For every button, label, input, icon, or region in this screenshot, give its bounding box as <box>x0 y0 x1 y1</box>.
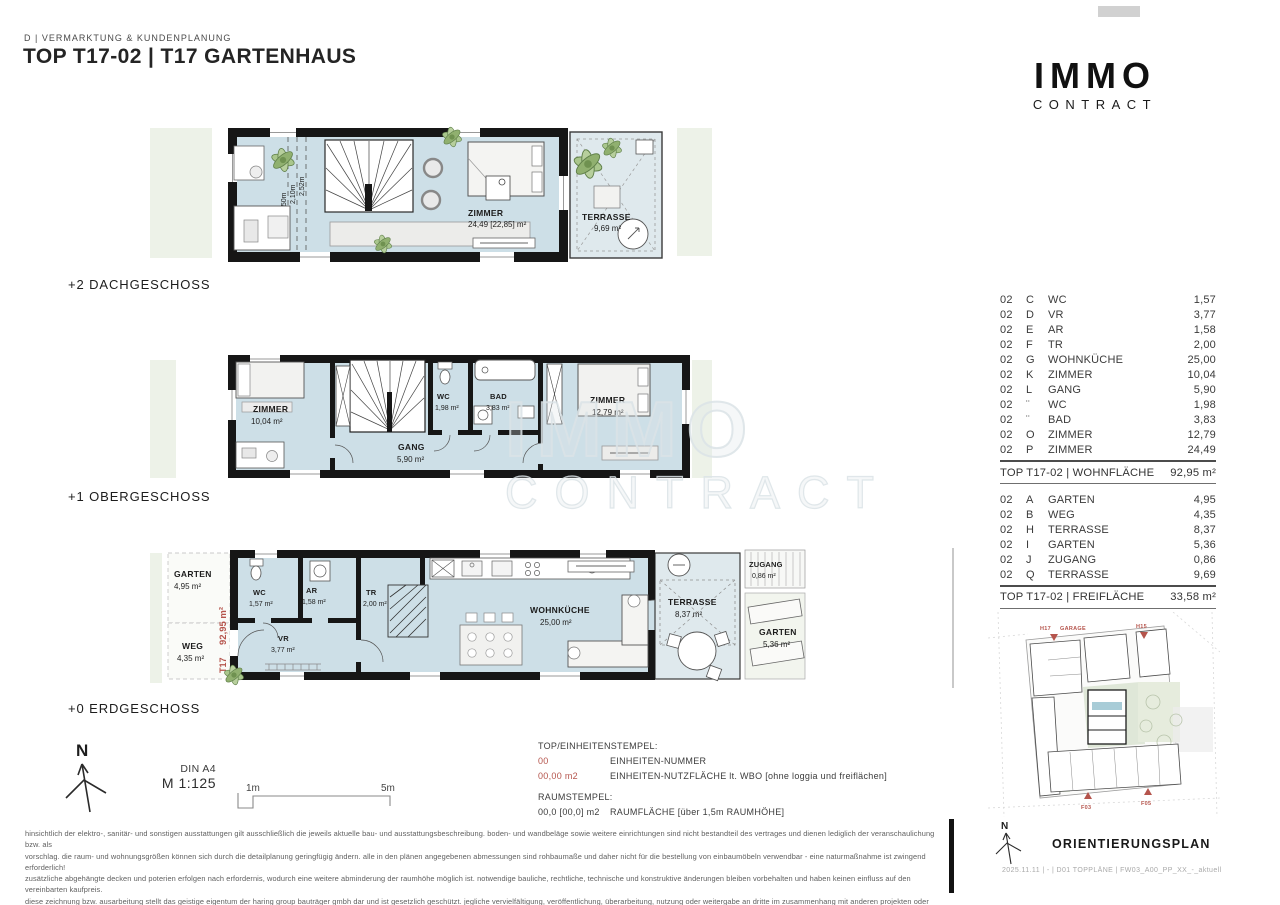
cell-unit: 02 <box>1000 339 1026 351</box>
wohnflaeche-total: TOP T17-02 | WOHNFLÄCHE 92,95 m² <box>1000 460 1216 484</box>
cell-unit: 02 <box>1000 539 1026 551</box>
stamp-legend: TOP/EINHEITENSTEMPEL: 00 EINHEITEN-NUMME… <box>538 741 938 822</box>
stamp-legend-title: TOP/EINHEITENSTEMPEL: <box>538 741 938 751</box>
cell-value: 1,98 <box>1194 399 1216 411</box>
scale-bar: 1m 5m <box>234 782 396 812</box>
north-compass: N <box>58 738 122 822</box>
cell-value: 0,86 <box>1194 554 1216 566</box>
table-row: 02DVR3,77 <box>1000 307 1216 322</box>
table-row: 02IGARTEN5,36 <box>1000 537 1216 552</box>
map-label-f03: F03 <box>1081 805 1091 811</box>
cell-name: TERRASSE <box>1048 569 1194 581</box>
total-label: TOP T17-02 | FREIFLÄCHE <box>1000 591 1144 603</box>
paper-format: DIN A4 <box>150 763 216 775</box>
table-row: 02¨WC1,98 <box>1000 398 1216 413</box>
floorplan-page: D | VERMARKTUNG & KUNDENPLANUNG TOP T17-… <box>0 0 1280 905</box>
cell-unit: 02 <box>1000 509 1026 521</box>
disclaimer-line: diese zeichnung bzw. ausarbeitung stellt… <box>25 896 940 905</box>
orientation-plan-title: ORIENTIERUNGSPLAN <box>1052 837 1211 851</box>
scale-tick-1m: 1m <box>246 783 260 794</box>
room-stamp-title: RAUMSTEMPEL: <box>538 792 938 802</box>
cell-letter: ¨ <box>1026 399 1048 411</box>
plan-dachgeschoss: 1,50m 2,10m 2,52m <box>150 124 715 266</box>
room-label: WOHNKÜCHE <box>530 605 590 615</box>
cell-name: WC <box>1048 294 1194 306</box>
room-label: VR <box>278 634 289 643</box>
total-area-stamp: 92,95 m² <box>218 607 229 645</box>
cell-letter: P <box>1026 444 1048 456</box>
cell-name: TERRASSE <box>1048 524 1194 536</box>
cell-value: 25,00 <box>1187 354 1216 366</box>
disclaimer-line: zusätzliche abgehängte decken und poteri… <box>25 873 940 896</box>
stairs-icon <box>350 360 425 432</box>
cell-value: 1,57 <box>1194 294 1216 306</box>
page-title: TOP T17-02 | T17 GARTENHAUS <box>23 45 356 69</box>
cell-unit: 02 <box>1000 354 1026 366</box>
room-area: 1,98 m² <box>435 405 459 412</box>
logo-immo: IMMO <box>1002 56 1188 96</box>
cell-letter: A <box>1026 494 1048 506</box>
room-area: 25,00 m² <box>540 618 572 627</box>
disclaimer-text: hinsichtlich der elektro-, sanitär- und … <box>25 828 940 905</box>
cell-letter: F <box>1026 339 1048 351</box>
map-label-h17: H17 <box>1040 626 1051 632</box>
cell-unit: 02 <box>1000 569 1026 581</box>
unit-area-desc: EINHEITEN-NUTZFLÄCHE lt. WBO [ohne loggi… <box>610 771 887 781</box>
zugang-area <box>745 550 805 588</box>
cell-value: 5,90 <box>1194 384 1216 396</box>
table-row: 02FTR2,00 <box>1000 337 1216 352</box>
room-area: 1,58 m² <box>302 599 326 606</box>
cell-value: 12,79 <box>1187 429 1216 441</box>
freiflaeche-table-rows: 02AGARTEN4,9502BWEG4,3502HTERRASSE8,3702… <box>1000 492 1216 583</box>
cell-name: WOHNKÜCHE <box>1048 354 1187 366</box>
cell-unit: 02 <box>1000 369 1026 381</box>
disclaimer-line: hinsichtlich der elektro-, sanitär- und … <box>25 828 940 851</box>
table-row: 02QTERRASSE9,69 <box>1000 568 1216 583</box>
room-label: WEG <box>182 641 203 651</box>
room-label: TERRASSE <box>582 212 631 222</box>
room-label: WC <box>437 392 450 401</box>
map-label-garage: GARAGE <box>1060 626 1086 632</box>
north-label: N <box>1001 821 1008 832</box>
total-label: TOP T17-02 | WOHNFLÄCHE <box>1000 467 1154 479</box>
table-row: 02HTERRASSE8,37 <box>1000 522 1216 537</box>
room-label: ZUGANG <box>749 560 783 569</box>
room-area: 2,00 m² <box>363 601 387 608</box>
cell-letter: D <box>1026 309 1048 321</box>
cell-letter: B <box>1026 509 1048 521</box>
cell-value: 4,35 <box>1194 509 1216 521</box>
cell-unit: 02 <box>1000 294 1026 306</box>
room-label: GARTEN <box>174 569 212 579</box>
table-row: 02BWEG4,35 <box>1000 507 1216 522</box>
cell-letter: O <box>1026 429 1048 441</box>
floor-label-obergeschoss: +1 OBERGESCHOSS <box>68 489 210 504</box>
room-label: ZIMMER <box>468 208 503 218</box>
room-sample: 00,0 [00,0] m2 <box>538 807 610 817</box>
room-area: 3,77 m² <box>271 647 295 654</box>
cell-value: 2,00 <box>1194 339 1216 351</box>
room-area: 3,83 m² <box>486 405 510 412</box>
cell-value: 9,69 <box>1194 569 1216 581</box>
cell-name: AR <box>1048 324 1194 336</box>
cell-letter: L <box>1026 384 1048 396</box>
table-row: 02CWC1,57 <box>1000 292 1216 307</box>
table-row: 02KZIMMER10,04 <box>1000 367 1216 382</box>
table-row: 02¨BAD3,83 <box>1000 413 1216 428</box>
room-area: 9,69 m² <box>594 224 621 233</box>
plan-file-footer: 2025.11.11 | - | D01 TOPPLÄNE | FW03_A00… <box>1002 867 1222 874</box>
cell-unit: 02 <box>1000 494 1026 506</box>
cell-letter: C <box>1026 294 1048 306</box>
cell-letter: ¨ <box>1026 414 1048 426</box>
plan-erdgeschoss: GARTEN 4,95 m² WEG 4,35 m² 92,95 m² T17 … <box>160 545 810 687</box>
freiflaeche-total: TOP T17-02 | FREIFLÄCHE 33,58 m² <box>1000 585 1216 609</box>
cell-value: 5,36 <box>1194 539 1216 551</box>
footer-divider <box>949 819 954 893</box>
table-row: 02JZUGANG0,86 <box>1000 552 1216 567</box>
cell-value: 24,49 <box>1187 444 1216 456</box>
cell-letter: G <box>1026 354 1048 366</box>
table-row: 02OZIMMER12,79 <box>1000 428 1216 443</box>
table-row: 02PZIMMER24,49 <box>1000 443 1216 458</box>
room-area: 8,37 m² <box>675 610 702 619</box>
dining-set <box>460 613 522 665</box>
cell-unit: 02 <box>1000 414 1026 426</box>
cell-value: 8,37 <box>1194 524 1216 536</box>
stairs-icon <box>325 140 413 212</box>
map-scale: M 1:125 <box>138 775 216 791</box>
cell-name: GARTEN <box>1048 539 1194 551</box>
cell-name: ZIMMER <box>1048 369 1187 381</box>
total-value: 92,95 m² <box>1170 467 1216 479</box>
room-area: 10,04 m² <box>251 417 283 426</box>
room-label: ZIMMER <box>590 395 625 405</box>
wohnflaeche-table-rows: 02CWC1,5702DVR3,7702EAR1,5802FTR2,0002GW… <box>1000 292 1216 458</box>
north-label: N <box>76 741 88 760</box>
room-area: 0,86 m² <box>752 573 776 580</box>
cell-unit: 02 <box>1000 384 1026 396</box>
total-value: 33,58 m² <box>1170 591 1216 603</box>
room-area: 1,57 m² <box>249 601 273 608</box>
room-area: 12,79 m² <box>592 408 624 417</box>
cell-unit: 02 <box>1000 309 1026 321</box>
cell-letter: J <box>1026 554 1048 566</box>
cell-name: BAD <box>1048 414 1194 426</box>
cell-unit: 02 <box>1000 524 1026 536</box>
unit-number-desc: EINHEITEN-NUMMER <box>610 756 706 766</box>
immo-contract-logo: IMMO CONTRACT <box>1002 56 1188 112</box>
room-area: 5,36 m² <box>763 640 790 649</box>
t17-block-highlight <box>1088 690 1126 744</box>
room-area: 4,35 m² <box>177 654 204 663</box>
room-label: TR <box>366 588 377 597</box>
cell-value: 10,04 <box>1187 369 1216 381</box>
stairs-icon <box>388 585 428 637</box>
room-label: GANG <box>398 442 425 452</box>
logo-contract: CONTRACT <box>1002 97 1188 112</box>
cell-letter: H <box>1026 524 1048 536</box>
cell-name: GANG <box>1048 384 1194 396</box>
cell-letter: I <box>1026 539 1048 551</box>
cell-unit: 02 <box>1000 399 1026 411</box>
orientation-compass: N <box>993 818 1033 870</box>
department-line: D | VERMARKTUNG & KUNDENPLANUNG <box>24 33 231 43</box>
cell-letter: Q <box>1026 569 1048 581</box>
cell-name: GARTEN <box>1048 494 1194 506</box>
table-row: 02GWOHNKÜCHE25,00 <box>1000 352 1216 367</box>
table-row: 02LGANG5,90 <box>1000 383 1216 398</box>
cell-unit: 02 <box>1000 429 1026 441</box>
cell-unit: 02 <box>1000 554 1026 566</box>
cell-unit: 02 <box>1000 324 1026 336</box>
unit-number-sample: 00 <box>538 756 610 766</box>
map-label-h15: H15 <box>1136 624 1147 630</box>
room-label: TERRASSE <box>668 597 717 607</box>
room-label: AR <box>306 586 318 595</box>
cell-name: WC <box>1048 399 1194 411</box>
floor-label-erdgeschoss: +0 ERDGESCHOSS <box>68 701 200 716</box>
floor-label-dachgeschoss: +2 DACHGESCHOSS <box>68 277 210 292</box>
cell-value: 1,58 <box>1194 324 1216 336</box>
room-area: 24,49 [22,85] m² <box>468 220 527 229</box>
room-area: 5,90 m² <box>397 455 424 464</box>
cell-value: 3,77 <box>1194 309 1216 321</box>
cell-letter: K <box>1026 369 1048 381</box>
table-row: 02AGARTEN4,95 <box>1000 492 1216 507</box>
orientation-map: H17 GARAGE H15 F03 F05 <box>988 612 1220 817</box>
terrace-table <box>678 632 716 670</box>
cell-name: ZUGANG <box>1048 554 1194 566</box>
cell-value: 3,83 <box>1194 414 1216 426</box>
room-desc: RAUMFLÄCHE [über 1,5m RAUMHÖHE] <box>610 807 784 817</box>
cell-name: VR <box>1048 309 1194 321</box>
height-label: 2,52m <box>299 176 306 196</box>
plan-frame-line <box>952 548 954 688</box>
cell-name: WEG <box>1048 509 1194 521</box>
room-label: GARTEN <box>759 627 797 637</box>
room-label: WC <box>253 588 266 597</box>
plan-obergeschoss: ZIMMER 10,04 m² WC 1,98 m² BAD 3,83 m² Z… <box>150 350 715 485</box>
map-label-f05: F05 <box>1141 801 1151 807</box>
room-label: ZIMMER <box>253 404 288 414</box>
room-label: BAD <box>490 392 507 401</box>
scale-tick-5m: 5m <box>381 783 395 794</box>
cell-name: ZIMMER <box>1048 429 1187 441</box>
print-mark <box>1098 6 1140 17</box>
table-row: 02EAR1,58 <box>1000 322 1216 337</box>
cell-value: 4,95 <box>1194 494 1216 506</box>
cell-name: TR <box>1048 339 1194 351</box>
cell-letter: E <box>1026 324 1048 336</box>
cell-name: ZIMMER <box>1048 444 1187 456</box>
cell-unit: 02 <box>1000 444 1026 456</box>
unit-area-sample: 00,00 m2 <box>538 771 610 781</box>
height-label: 2,10m <box>290 184 297 204</box>
room-area: 4,95 m² <box>174 582 201 591</box>
area-tables: 02CWC1,5702DVR3,7702EAR1,5802FTR2,0002GW… <box>1000 292 1216 609</box>
disclaimer-line: vorschlag. die raum- und wohnungsgrößen … <box>25 851 940 874</box>
